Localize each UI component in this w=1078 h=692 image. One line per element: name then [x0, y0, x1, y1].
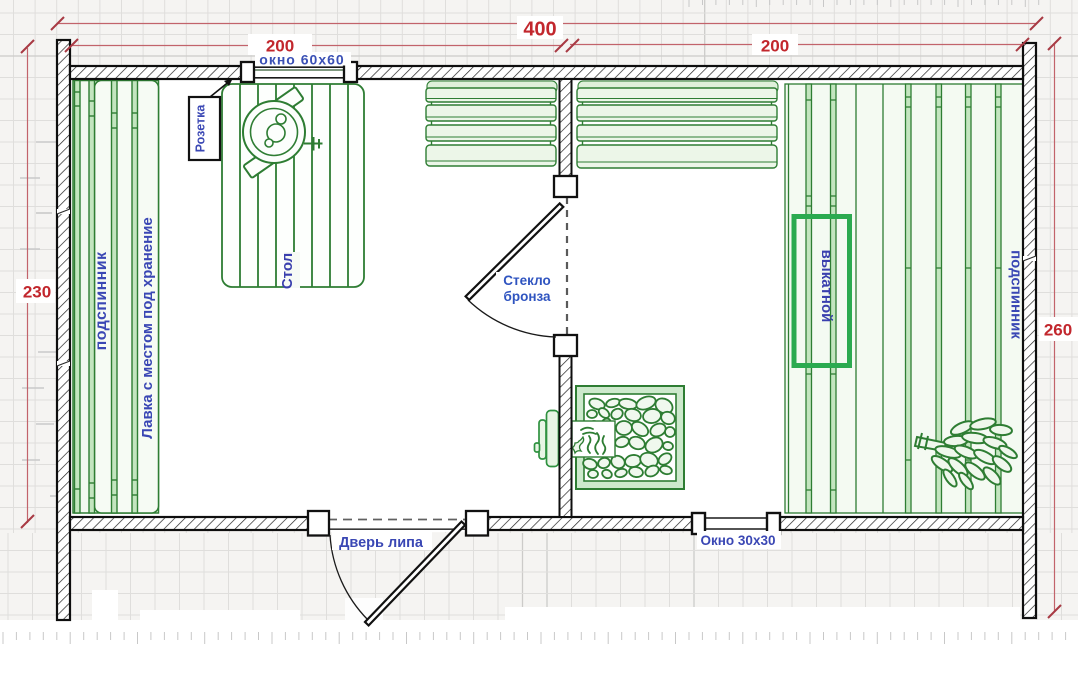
svg-text:Дверь липа: Дверь липа	[339, 535, 424, 551]
svg-text:бронза: бронза	[503, 289, 551, 304]
svg-text:400: 400	[523, 19, 556, 41]
svg-text:230: 230	[23, 283, 51, 302]
svg-text:выкатной: выкатной	[818, 250, 835, 323]
svg-text:Окно 30х30: Окно 30х30	[701, 533, 776, 548]
svg-text:Лавка с местом под хранение: Лавка с местом под хранение	[139, 217, 156, 439]
svg-text:Стол: Стол	[279, 253, 296, 289]
svg-text:подспинник: подспинник	[93, 251, 110, 350]
svg-text:Розетка: Розетка	[194, 104, 208, 153]
svg-text:200: 200	[761, 37, 789, 56]
svg-text:260: 260	[1044, 321, 1072, 340]
svg-text:окно 60х60: окно 60х60	[259, 52, 344, 68]
svg-text:Стекло: Стекло	[503, 273, 550, 288]
